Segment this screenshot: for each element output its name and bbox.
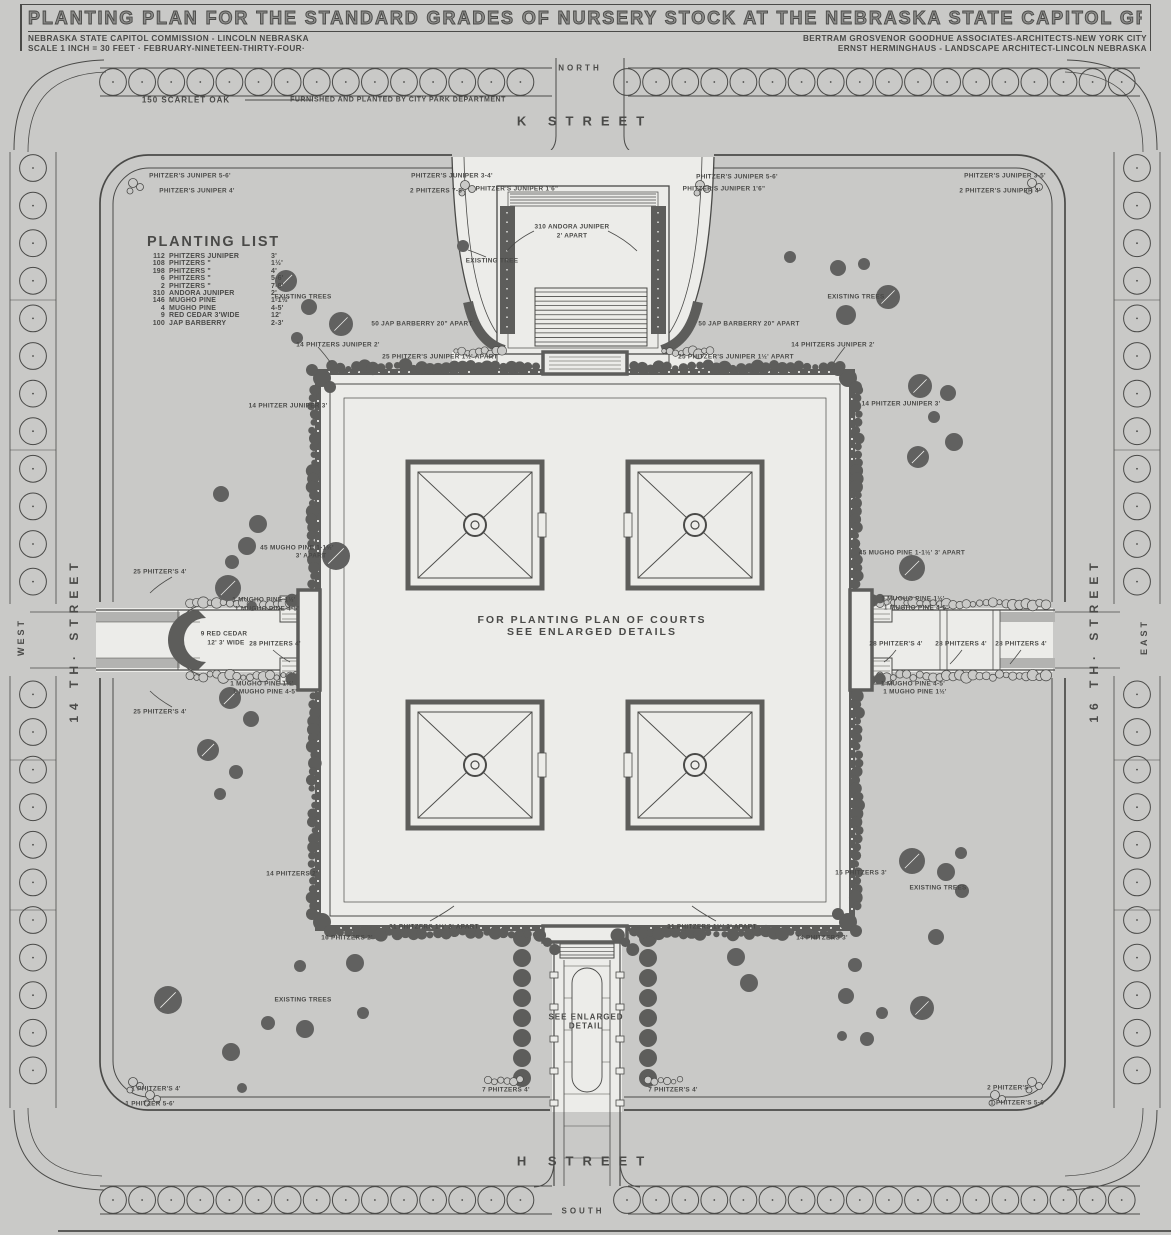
shrub-mass bbox=[636, 926, 649, 939]
street-tree-center bbox=[1136, 242, 1138, 244]
street-tree-center bbox=[1136, 167, 1138, 169]
shrub-mass bbox=[713, 931, 719, 937]
street-tree-center bbox=[1136, 806, 1138, 808]
walk-tree bbox=[513, 989, 531, 1007]
shrub-mass bbox=[549, 944, 560, 955]
plant-annotation: 14 PHITZER JUNIPER 3' bbox=[249, 403, 328, 410]
planting-list-row: 108PHITZERS "1½' bbox=[147, 260, 303, 267]
street-tree-center bbox=[32, 994, 34, 996]
shrub-mass bbox=[776, 928, 789, 941]
plant-annotation: 2 PHITZER'S bbox=[987, 1085, 1029, 1092]
street-tree-center bbox=[1136, 280, 1138, 282]
compass-label: WEST bbox=[16, 618, 26, 656]
street-tree-center bbox=[859, 1199, 861, 1201]
street-label: H STREET bbox=[517, 1154, 653, 1169]
plant-annotation: 1 MUGHO PINE 1½' bbox=[230, 681, 294, 688]
street-tree-center bbox=[1136, 769, 1138, 771]
plant-annotation: 12' 3' WIDE bbox=[207, 640, 244, 647]
shrub-mass bbox=[517, 1076, 524, 1083]
leader-line bbox=[150, 691, 172, 707]
existing-tree bbox=[945, 433, 963, 451]
shrub-mass bbox=[854, 718, 861, 725]
existing-tree bbox=[848, 958, 862, 972]
shrub-mass bbox=[310, 692, 317, 699]
existing-tree bbox=[740, 974, 758, 992]
corner-shrub bbox=[137, 184, 144, 191]
street-tree-center bbox=[199, 81, 201, 83]
plant-annotation: 1 MUGHO PINE 4-5' bbox=[235, 606, 299, 613]
compass-label: SOUTH bbox=[562, 1207, 605, 1216]
planting-list-row: 6PHITZERS "5-6' bbox=[147, 275, 303, 282]
shrub-mass bbox=[498, 928, 508, 938]
landscape-architect-line: ERNST HERMINGHAUS - LANDSCAPE ARCHITECT-… bbox=[803, 44, 1147, 54]
shrub-mass bbox=[855, 411, 862, 418]
shrub-mass bbox=[310, 442, 319, 451]
existing-tree bbox=[955, 847, 967, 859]
street-tree-center bbox=[32, 543, 34, 545]
street-tree-center bbox=[946, 81, 948, 83]
existing-tree bbox=[213, 486, 229, 502]
shrub-mass bbox=[787, 928, 795, 936]
street-tree-center bbox=[432, 1199, 434, 1201]
street-tree-center bbox=[32, 468, 34, 470]
shrub-mass bbox=[306, 774, 317, 785]
corner-shrub bbox=[469, 186, 476, 193]
plant-annotation: 28 PHITZER'S 4' bbox=[869, 641, 922, 648]
existing-tree bbox=[784, 251, 796, 263]
street-tree-center bbox=[655, 81, 657, 83]
plant-name: MUGHO PINE bbox=[169, 305, 271, 312]
note-label: DETAIL bbox=[569, 1022, 603, 1031]
plant-annotation: 28 PHITZERS 4' bbox=[935, 641, 987, 648]
plant-qty: 146 bbox=[147, 297, 169, 304]
street-tree-center bbox=[32, 205, 34, 207]
plant-annotation: 2 PHITZERS 7-8' bbox=[410, 188, 464, 195]
street-tree-center bbox=[170, 1199, 172, 1201]
plan-rect bbox=[616, 1068, 624, 1074]
street-label: 16 TH· STREET bbox=[1087, 557, 1101, 722]
shrub-mass bbox=[311, 794, 317, 800]
plant-name: RED CEDAR 3'WIDE bbox=[169, 312, 271, 319]
plant-name: PHITZERS " bbox=[169, 268, 271, 275]
shrub-mass bbox=[851, 579, 860, 588]
plant-annotation: 25 PHITZER'S JUNIPER 1½' APART bbox=[382, 354, 498, 361]
plan-sheet: PLANTING PLAN FOR THE STANDARD GRADES OF… bbox=[0, 0, 1171, 1235]
street-tree-center bbox=[32, 806, 34, 808]
street-tree-center bbox=[1136, 468, 1138, 470]
shrub-mass bbox=[853, 418, 862, 427]
existing-tree bbox=[346, 954, 364, 972]
planting-list-rows: 112PHITZERS JUNIPER3'108PHITZERS "1½'198… bbox=[147, 253, 303, 327]
plant-annotation: 7 PHITZERS 4' bbox=[482, 1087, 530, 1094]
shrub-mass bbox=[853, 707, 865, 719]
plant-annotation: PHITZER'S JUNIPER 1'6" bbox=[476, 186, 559, 193]
existing-tree bbox=[836, 305, 856, 325]
street-tree-center bbox=[655, 1199, 657, 1201]
existing-tree bbox=[294, 960, 306, 972]
shrub-mass bbox=[851, 851, 861, 861]
existing-tree bbox=[229, 765, 243, 779]
plan-rect bbox=[616, 1036, 624, 1042]
shrub-mass bbox=[687, 362, 696, 371]
street-tree-center bbox=[32, 355, 34, 357]
plant-annotation: 31 PHITZERS 1½' 3' APART bbox=[667, 924, 757, 931]
plant-annotation: 25 PHITZER'S JUNIPER 1½' APART bbox=[678, 354, 794, 361]
plant-name: JAP BARBERRY bbox=[169, 320, 271, 327]
plant-annotation: 25 PHITZER'S 4' bbox=[133, 709, 186, 716]
shrub-mass bbox=[832, 908, 844, 920]
existing-tree bbox=[940, 385, 956, 401]
street-tree-center bbox=[946, 1199, 948, 1201]
street-tree-center bbox=[713, 81, 715, 83]
shrub-mass bbox=[679, 363, 689, 373]
plant-annotation: EXISTING TREES bbox=[274, 294, 331, 301]
capitol-building bbox=[318, 372, 852, 928]
shrub-mass bbox=[307, 842, 318, 853]
shrub-mass bbox=[309, 877, 317, 885]
north-portico bbox=[543, 352, 627, 374]
plan-path bbox=[14, 1110, 104, 1190]
shrub-mass bbox=[738, 930, 745, 937]
plant-name: PHITZERS " bbox=[169, 275, 271, 282]
shrub-mass bbox=[854, 443, 862, 451]
walk-tree bbox=[513, 1049, 531, 1067]
street-tree-center bbox=[287, 81, 289, 83]
plant-annotation: 1 MUGHO PINE 1½' bbox=[881, 596, 945, 603]
architect-line: BERTRAM GROSVENOR GOODHUE ASSOCIATES-ARC… bbox=[803, 34, 1147, 44]
shrub-mass bbox=[490, 361, 500, 371]
existing-tree bbox=[830, 260, 846, 276]
shrub-mass bbox=[306, 908, 318, 920]
shrub-mass bbox=[852, 861, 859, 868]
shrub-mass bbox=[524, 930, 532, 938]
shrub-mass bbox=[970, 601, 976, 607]
shrub-mass bbox=[312, 827, 319, 834]
plant-annotation: EXISTING TREES bbox=[274, 997, 331, 1004]
walk-tree bbox=[639, 949, 657, 967]
street-tree-center bbox=[626, 1199, 628, 1201]
plant-qty: 2 bbox=[147, 283, 169, 290]
street-tree-center bbox=[258, 1199, 260, 1201]
shrub-mass bbox=[241, 675, 246, 680]
street-tree-center bbox=[32, 506, 34, 508]
shrub-mass bbox=[849, 400, 861, 412]
existing-tree bbox=[937, 863, 955, 881]
plant-annotation: 1 PHITZER'S 4' bbox=[131, 1086, 181, 1093]
shrub-mass bbox=[281, 673, 286, 678]
street-tree-center bbox=[1004, 81, 1006, 83]
plant-annotation: 1 MUGHO PINE 4-5' bbox=[881, 681, 945, 688]
walk-tree bbox=[639, 1009, 657, 1027]
plan-rect bbox=[1000, 612, 1055, 622]
street-tree-center bbox=[490, 81, 492, 83]
existing-tree bbox=[457, 240, 469, 252]
shrub-mass bbox=[976, 600, 982, 606]
plan-rect bbox=[96, 658, 180, 668]
street-tree-center bbox=[917, 81, 919, 83]
existing-tree bbox=[296, 1020, 314, 1038]
street-tree-center bbox=[1136, 430, 1138, 432]
street-tree-center bbox=[32, 731, 34, 733]
street-tree-center bbox=[888, 81, 890, 83]
street-tree-center bbox=[32, 1070, 34, 1072]
shrub-mass bbox=[311, 451, 318, 458]
compass-label: NORTH bbox=[558, 64, 601, 73]
shrub-mass bbox=[416, 929, 427, 940]
plan-path bbox=[28, 72, 106, 152]
shrub-mass bbox=[854, 826, 863, 835]
shrub-mass bbox=[651, 1078, 658, 1085]
existing-tree bbox=[238, 537, 256, 555]
street-label: 14 TH· STREET bbox=[67, 557, 81, 722]
street-tree-center bbox=[403, 81, 405, 83]
plant-annotation: 7 PHITZER'S 4' bbox=[648, 1087, 698, 1094]
plan-rect bbox=[616, 1100, 624, 1106]
street-tree-center bbox=[461, 1199, 463, 1201]
plant-annotation: 28 PHITZERS 4' bbox=[995, 641, 1047, 648]
plan-rect bbox=[550, 1068, 558, 1074]
street-tree-center bbox=[1136, 1070, 1138, 1072]
street-tree-center bbox=[229, 81, 231, 83]
street-tree-center bbox=[1063, 81, 1065, 83]
walk-tree bbox=[639, 989, 657, 1007]
corner-shrub bbox=[1036, 1083, 1043, 1090]
plant-annotation: 16 PHITZERS 3' bbox=[835, 870, 887, 877]
street-tree-center bbox=[801, 1199, 803, 1201]
shrub-mass bbox=[524, 362, 533, 371]
commission-credit: NEBRASKA STATE CAPITOL COMMISSION - LINC… bbox=[28, 34, 309, 53]
existing-tree bbox=[357, 1007, 369, 1019]
plant-annotation: 3' APART bbox=[296, 553, 327, 560]
shrub-mass bbox=[306, 364, 318, 376]
plan-path bbox=[1065, 1108, 1143, 1176]
plant-size: 4' bbox=[271, 268, 303, 275]
shrub-mass bbox=[662, 361, 671, 370]
shrub-mass bbox=[1040, 670, 1051, 681]
street-tree-center bbox=[32, 957, 34, 959]
street-tree-center bbox=[684, 1199, 686, 1201]
street-tree-center bbox=[32, 882, 34, 884]
plant-size: 5-6' bbox=[271, 275, 303, 282]
existing-tree bbox=[261, 1016, 275, 1030]
plan-rect bbox=[550, 1004, 558, 1010]
shrub-mass bbox=[677, 1076, 683, 1082]
shrub-mass bbox=[852, 742, 860, 750]
street-tree-center bbox=[374, 81, 376, 83]
street-tree-center bbox=[32, 919, 34, 921]
street-tree-center bbox=[975, 1199, 977, 1201]
existing-tree bbox=[876, 1007, 888, 1019]
shrub-mass bbox=[426, 931, 433, 938]
shrub-mass bbox=[658, 1077, 663, 1082]
planting-list-row: 9RED CEDAR 3'WIDE12' bbox=[147, 312, 303, 319]
shrub-mass bbox=[265, 670, 274, 679]
existing-tree bbox=[237, 1083, 247, 1093]
shrub-mass bbox=[186, 672, 194, 680]
planting-list-title: PLANTING LIST bbox=[147, 234, 303, 250]
plant-annotation: 1 MUGHO PINE 4-5' bbox=[233, 689, 297, 696]
street-tree-center bbox=[141, 81, 143, 83]
shrub-mass bbox=[309, 767, 317, 775]
street-tree-center bbox=[432, 81, 434, 83]
shrub-mass bbox=[374, 928, 388, 942]
plant-annotation: 28 PHITZERS 4' bbox=[249, 641, 301, 648]
court-notch bbox=[624, 513, 632, 537]
street-tree-center bbox=[520, 1199, 522, 1201]
street-tree-center bbox=[32, 694, 34, 696]
street-tree-center bbox=[1136, 882, 1138, 884]
street-tree-center bbox=[713, 1199, 715, 1201]
existing-tree bbox=[860, 1032, 874, 1046]
existing-tree bbox=[301, 299, 317, 315]
street-tree-center bbox=[141, 1199, 143, 1201]
corner-shrub bbox=[127, 188, 133, 194]
plant-qty: 9 bbox=[147, 312, 169, 319]
plant-annotation: 14 PHITZERS 2' bbox=[266, 871, 318, 878]
plant-name: PHITZERS " bbox=[169, 283, 271, 290]
plant-annotation: PHITZER'S JUNIPER 4' bbox=[159, 188, 234, 195]
plant-size: 12' bbox=[271, 312, 303, 319]
walk-tree bbox=[639, 1029, 657, 1047]
shrub-mass bbox=[308, 562, 319, 573]
leader-line bbox=[834, 347, 845, 362]
plant-size: 4-5' bbox=[271, 305, 303, 312]
shrub-mass bbox=[812, 364, 818, 370]
plant-annotation: PHITZER'S JUNIPER 3-5' bbox=[964, 173, 1046, 180]
shrub-mass bbox=[850, 381, 862, 393]
shrub-mass bbox=[852, 522, 863, 533]
shrub-mass bbox=[982, 672, 990, 680]
shrub-mass bbox=[803, 363, 811, 371]
compass-label: EAST bbox=[1139, 619, 1149, 655]
plant-size: 1½' bbox=[271, 260, 303, 267]
plant-annotation: 16 PHITZERS 2' bbox=[321, 935, 373, 942]
street-tree-center bbox=[32, 318, 34, 320]
street-tree-center bbox=[229, 1199, 231, 1201]
plant-annotation: 1 PHITZER 5-6' bbox=[125, 1101, 174, 1108]
shrub-mass bbox=[853, 877, 861, 885]
street-tree-center bbox=[1121, 1199, 1123, 1201]
shrub-mass bbox=[794, 361, 804, 371]
street-tree-center bbox=[1034, 1199, 1036, 1201]
walk-tree bbox=[639, 1049, 657, 1067]
existing-tree bbox=[214, 788, 226, 800]
street-tree-center bbox=[316, 81, 318, 83]
shrub-mass bbox=[852, 532, 859, 539]
plant-qty: 108 bbox=[147, 260, 169, 267]
plant-annotation: PHITZER'S JUNIPER 1'6" bbox=[683, 186, 766, 193]
plan-rect bbox=[550, 1100, 558, 1106]
shrub-mass bbox=[664, 1077, 671, 1084]
street-tree-center bbox=[112, 1199, 114, 1201]
street-tree-center bbox=[1136, 506, 1138, 508]
street-tree-center bbox=[32, 167, 34, 169]
street-tree-center bbox=[1136, 393, 1138, 395]
shrub-mass bbox=[484, 1076, 491, 1083]
street-tree-center bbox=[772, 81, 774, 83]
plant-annotation: EXISTING TREE bbox=[466, 258, 519, 265]
street-tree-center bbox=[1004, 1199, 1006, 1201]
shrub-mass bbox=[207, 671, 213, 677]
plant-annotation: EXISTING TREES bbox=[909, 885, 966, 892]
west-bay bbox=[298, 590, 320, 690]
street-tree-center bbox=[374, 1199, 376, 1201]
street-tree-center bbox=[32, 581, 34, 583]
plant-annotation: 2 PHITZER'S JUNIPER 4' bbox=[959, 188, 1040, 195]
shrub-mass bbox=[311, 419, 318, 426]
plant-annotation: 1 MUGHO PINE 1½' bbox=[883, 689, 947, 696]
shrub-mass bbox=[1003, 672, 1009, 678]
court-notch bbox=[538, 513, 546, 537]
plant-annotation: 14 PHITZERS 3' bbox=[796, 935, 848, 942]
street-tree-center bbox=[684, 81, 686, 83]
plant-annotation: PHITZER'S JUNIPER 5-6' bbox=[696, 174, 778, 181]
street-tree-center bbox=[520, 81, 522, 83]
street-tree-center bbox=[859, 81, 861, 83]
street-tree-center bbox=[170, 81, 172, 83]
walk-tree bbox=[513, 1029, 531, 1047]
street-tree-center bbox=[1063, 1199, 1065, 1201]
plant-annotation: 45 MUGHO PINE 1-1½' bbox=[260, 545, 334, 552]
shrub-mass bbox=[474, 930, 483, 939]
shrub-mass bbox=[324, 381, 336, 393]
shrub-mass bbox=[995, 670, 1003, 678]
shrub-mass bbox=[705, 930, 711, 936]
shrub-mass bbox=[497, 346, 506, 355]
street-tree-center bbox=[626, 81, 628, 83]
plan-rect bbox=[616, 1004, 624, 1010]
shrub-mass bbox=[310, 572, 318, 580]
plant-annotation: 45 MUGHO PINE 1-1½' 3' APART bbox=[859, 550, 965, 557]
plant-annotation: 1 MUGHO PINE 1½' bbox=[232, 597, 296, 604]
note-label: SEE ENLARGED DETAILS bbox=[507, 626, 677, 638]
shrub-mass bbox=[376, 363, 385, 372]
street-tree-center bbox=[1136, 957, 1138, 959]
shrub-mass bbox=[308, 852, 316, 860]
street-tree-center bbox=[1136, 694, 1138, 696]
plant-annotation: 25 PHITZER'S 4' bbox=[133, 569, 186, 576]
shrub-mass bbox=[516, 930, 523, 937]
street-tree-center bbox=[32, 769, 34, 771]
shrub-mass bbox=[854, 750, 863, 759]
street-tree-center bbox=[801, 81, 803, 83]
plant-annotation: EXISTING TREES bbox=[827, 294, 884, 301]
shrub-mass bbox=[309, 394, 317, 402]
street-tree-center bbox=[345, 1199, 347, 1201]
corner-shrub bbox=[129, 179, 138, 188]
shrub-mass bbox=[626, 943, 639, 956]
shrub-mass bbox=[345, 366, 351, 372]
street-tree-center bbox=[316, 1199, 318, 1201]
plant-qty: 310 bbox=[147, 290, 169, 297]
plant-annotation: 1 MUGHO PINE 4-5' bbox=[884, 605, 948, 612]
existing-tree bbox=[727, 948, 745, 966]
shrub-mass bbox=[306, 892, 318, 904]
plan-rect bbox=[550, 1036, 558, 1042]
street-tree-center bbox=[32, 280, 34, 282]
shrub-mass bbox=[988, 598, 997, 607]
shrub-mass bbox=[853, 834, 863, 844]
street-tree-center bbox=[32, 430, 34, 432]
street-tree-center bbox=[1136, 543, 1138, 545]
plant-annotation: 9 RED CEDAR bbox=[201, 631, 248, 638]
shrub-mass bbox=[851, 766, 862, 777]
scale-date-line: SCALE 1 INCH = 30 FEET · FEBRUARY-NINETE… bbox=[28, 44, 309, 54]
existing-tree bbox=[837, 1031, 847, 1041]
street-tree-center bbox=[1136, 355, 1138, 357]
shrub-mass bbox=[854, 451, 862, 459]
plant-qty: 198 bbox=[147, 268, 169, 275]
